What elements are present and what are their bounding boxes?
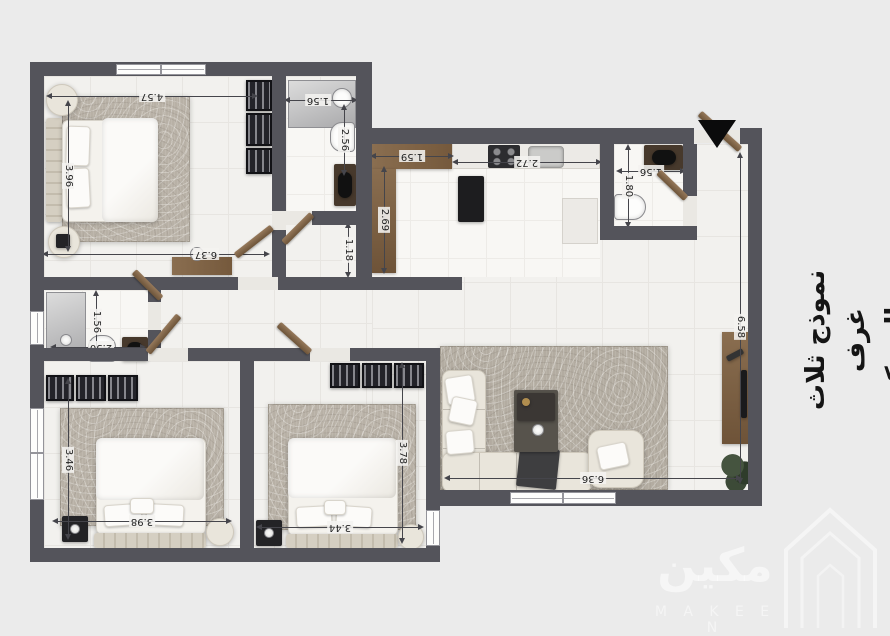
window-divider bbox=[160, 64, 162, 75]
wardrobe-bedroom1 bbox=[246, 113, 272, 146]
plan-title-line1: نموذج ثلاث غرف bbox=[796, 245, 876, 435]
dimension-label: 3.46 bbox=[62, 447, 74, 473]
door-threshold bbox=[683, 196, 697, 226]
door-threshold bbox=[148, 302, 161, 330]
bed1-duvet bbox=[102, 118, 158, 222]
table-decor bbox=[522, 398, 530, 406]
dimension-label: 6.58 bbox=[734, 314, 746, 340]
dimension-label: 1.59 bbox=[399, 150, 425, 162]
bed3-duvet bbox=[288, 438, 396, 498]
wall bbox=[683, 144, 697, 196]
bed2-headboard bbox=[94, 533, 206, 548]
plan-title: نموذج ثلاث غرف وصاله مكين 80 bbox=[796, 245, 880, 435]
wall bbox=[356, 76, 372, 290]
wall bbox=[240, 361, 254, 548]
wall bbox=[356, 128, 694, 144]
lamp-icon bbox=[264, 528, 274, 538]
wall bbox=[312, 211, 356, 225]
window-divider bbox=[30, 452, 44, 454]
table-decor bbox=[532, 424, 544, 436]
wall bbox=[30, 348, 148, 361]
wall bbox=[740, 128, 762, 144]
dimension-label: 1.18 bbox=[342, 237, 354, 263]
wardrobe-bedroom2 bbox=[108, 375, 138, 401]
wardrobe-bedroom2 bbox=[76, 375, 106, 401]
pouf-bedroom1 bbox=[46, 84, 78, 116]
wardrobe-bedroom3 bbox=[330, 363, 360, 388]
wardrobe-bedroom1 bbox=[246, 148, 272, 174]
tv-icon bbox=[741, 370, 747, 418]
watermark-house-icon bbox=[778, 498, 883, 630]
kitchen-cabinet-white bbox=[562, 198, 598, 244]
dimension-label: 3.98 bbox=[129, 515, 155, 527]
fridge bbox=[458, 176, 484, 222]
dimension-label: 2.69 bbox=[378, 207, 390, 233]
window-divider bbox=[562, 492, 564, 504]
dimension-label: 6.37 bbox=[193, 248, 219, 260]
bed3-headboard bbox=[286, 534, 398, 548]
shower-head-bath3 bbox=[60, 334, 72, 346]
dimension-label: 2.72 bbox=[514, 156, 540, 168]
throw-blanket bbox=[516, 446, 560, 490]
door-threshold bbox=[272, 211, 286, 230]
dimension-label: 4.57 bbox=[139, 90, 165, 102]
wall bbox=[748, 128, 762, 506]
sofa-pillow bbox=[448, 396, 479, 427]
window bbox=[30, 311, 44, 345]
floor-plan: 4.57 3.96 6.37 1.56 2.56 1.59 2.69 2.72 … bbox=[0, 0, 890, 636]
wall bbox=[272, 76, 286, 211]
door-threshold bbox=[310, 348, 350, 361]
bed1-headboard bbox=[46, 118, 62, 222]
dimension-label: 3.44 bbox=[327, 521, 353, 533]
entrance-marker-icon bbox=[698, 120, 736, 148]
wall bbox=[600, 226, 697, 240]
wardrobe-bedroom3 bbox=[362, 363, 392, 388]
watermark-arabic: مكين bbox=[645, 538, 785, 592]
sofa-pillow bbox=[445, 429, 475, 455]
plan-title-line2: وصاله مكين 80 bbox=[876, 245, 890, 435]
dimension-label: 2.56 bbox=[338, 127, 350, 153]
bed2-duvet bbox=[96, 438, 204, 500]
bed1-pillow bbox=[65, 126, 90, 167]
bed3-pillow-small bbox=[324, 500, 346, 515]
wall bbox=[426, 348, 440, 495]
dimension-label: 1.80 bbox=[622, 173, 634, 199]
wall bbox=[30, 548, 440, 562]
window bbox=[426, 510, 440, 546]
wall bbox=[188, 348, 310, 361]
dimension-label: 6.36 bbox=[580, 472, 606, 484]
watermark-latin: M A K E E N bbox=[645, 604, 785, 636]
window bbox=[30, 408, 44, 500]
bed2-pillow-small bbox=[130, 498, 154, 514]
dimension-label: 1.56 bbox=[305, 94, 331, 106]
door-threshold bbox=[238, 277, 278, 290]
dimension-label: 1.56 bbox=[90, 309, 102, 335]
wall bbox=[278, 277, 462, 290]
dimension-label: 3.96 bbox=[62, 163, 74, 189]
coffee-table-tray bbox=[517, 393, 555, 421]
basin-bath-right bbox=[652, 150, 676, 165]
lamp-icon bbox=[70, 524, 80, 534]
dimension-line bbox=[48, 254, 264, 255]
dimension-label: 3.78 bbox=[396, 440, 408, 466]
